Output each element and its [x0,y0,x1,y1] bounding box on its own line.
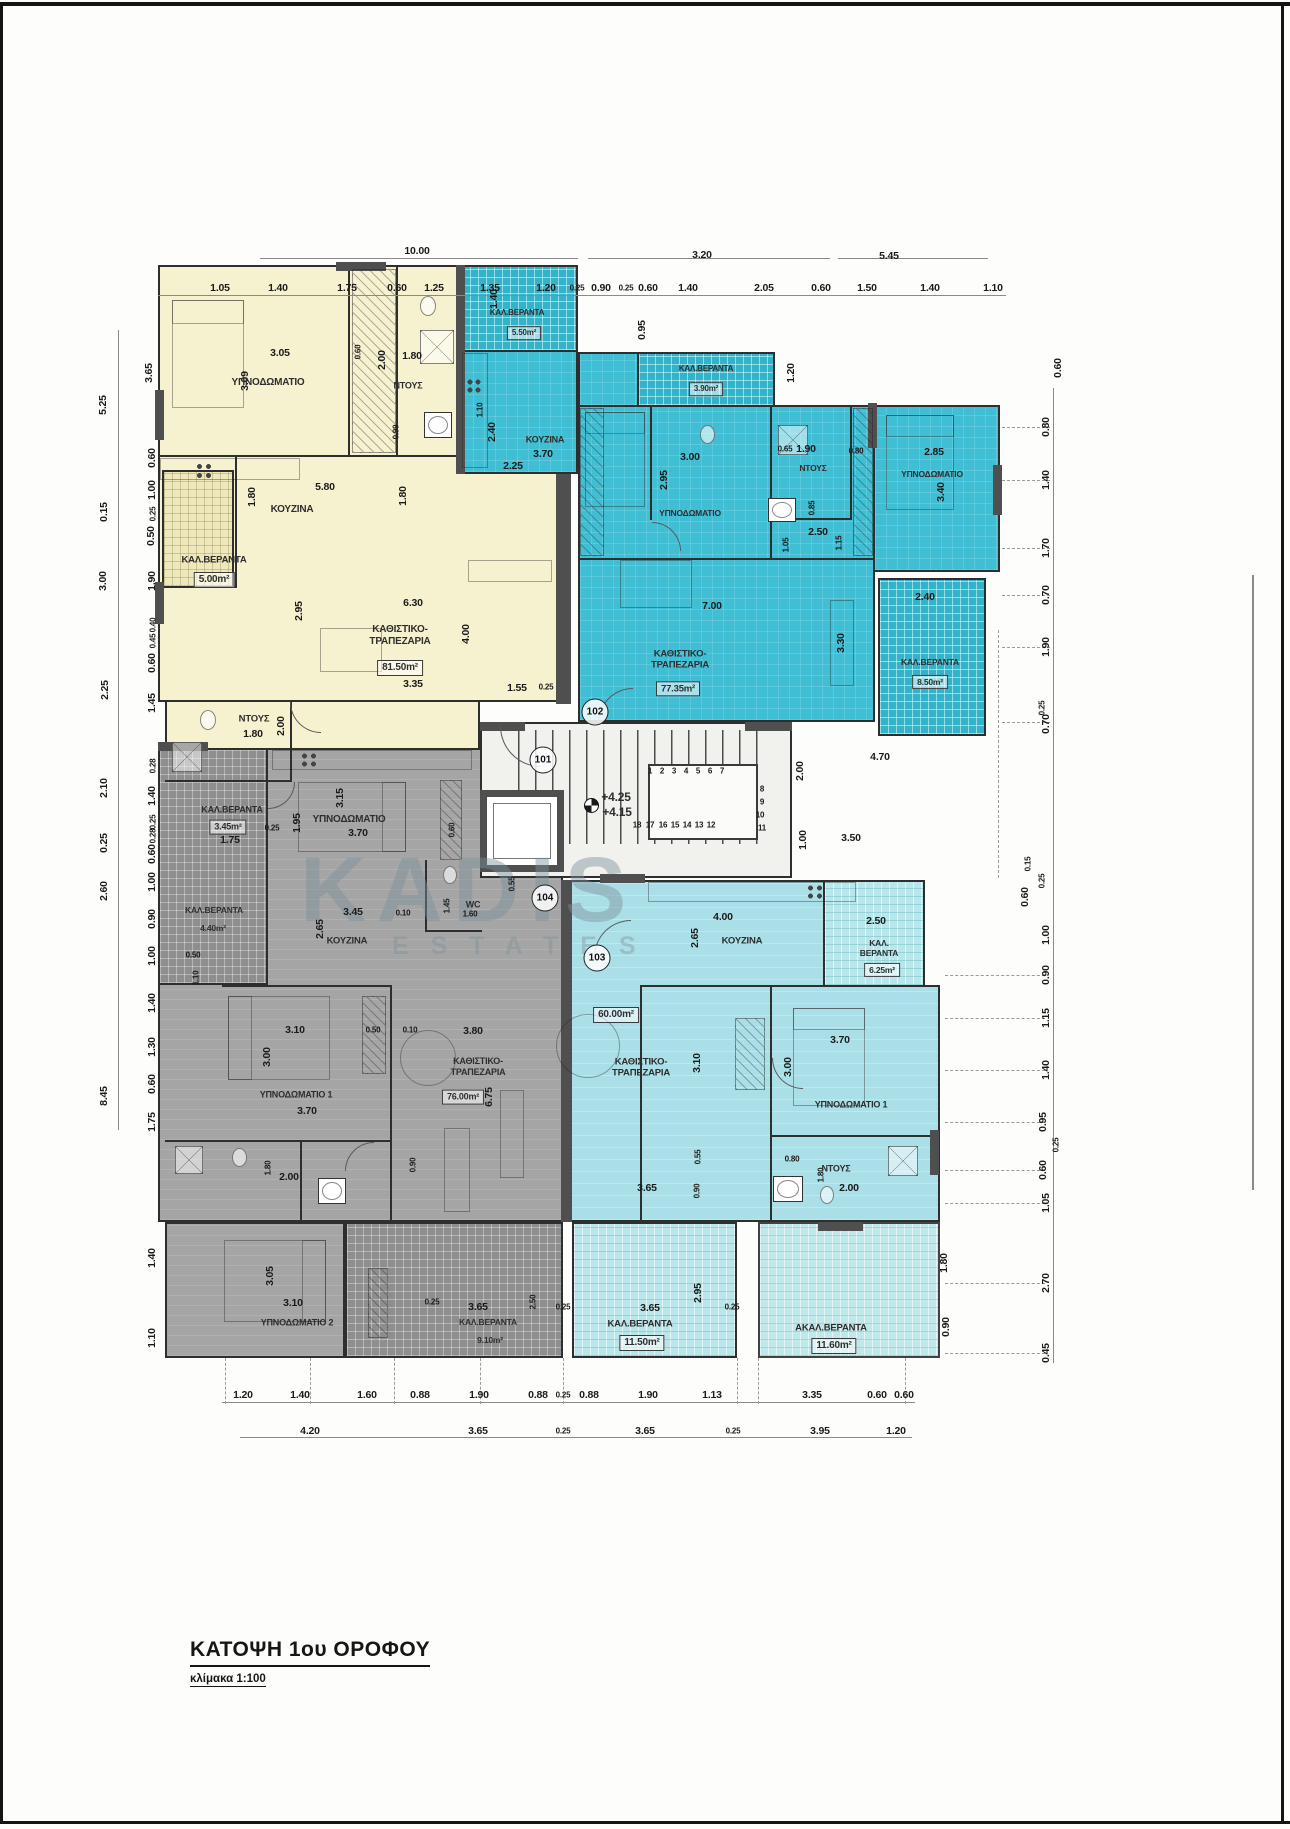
dim-label: 3.70 [348,827,368,839]
dim-label: 2.65 [314,919,326,939]
dim-label: 2.50 [529,1295,538,1310]
dim-label: 0.10 [403,1026,418,1035]
dim-label: 1.20 [536,282,556,294]
dim-label: 1.45 [443,899,452,914]
floor-plan-page: KADIS ESTATES 10.003.205.451.051.401.750… [0,0,1290,1829]
unit-103-badge: 103 [584,945,611,972]
dim-label: 0.50 [366,1026,381,1035]
dim-label: 3.70 [297,1105,317,1117]
dim-label: 0.25 [149,507,158,522]
dim-label: 2.40 [486,422,498,442]
dim-label: 0.45 [1040,1343,1052,1363]
room-label: ΥΠΝΟΔΩΜΑΤΙΟ 1 [815,1100,888,1111]
room-label: 4.40m² [200,923,226,933]
room-label: 3.90m² [689,382,723,396]
room-label: +4.15 [602,805,631,819]
dim-label: 3.05 [270,347,290,359]
dim-label: 0.60 [1019,887,1031,907]
dim-label: 0.80 [785,1155,800,1164]
dim-label: 6.75 [483,1087,495,1107]
room-label: 9.10m² [477,1335,503,1345]
dim-label: 0.85 [808,501,817,516]
dim-label: 1.70 [1040,538,1052,558]
dim-label: 0.70 [1040,714,1052,734]
dim-label: 1.80 [938,1253,950,1273]
dim-label: 10.00 [404,245,429,257]
dim-label: 0.60 [638,282,658,294]
room-label: 11.50m² [619,1335,664,1351]
dim-label: 3.65 [635,1425,655,1437]
dim-label: 0.88 [410,1389,430,1401]
dim-label: 2.00 [279,1171,299,1183]
dim-label: 3.95 [810,1425,830,1437]
dim-label: 1.90 [146,571,158,591]
room-label: ΑΚΑΛ.ΒΕΡΑΝΤΑ [795,1322,867,1333]
dim-label: 3.30 [835,633,847,653]
drawing-scale: κλίμακα 1:100 [190,1673,266,1687]
dim-label: 4.00 [713,911,733,923]
dim-label: 0.25 [556,1391,571,1400]
dim-label: 0.60 [811,282,831,294]
dim-label: 2.50 [866,915,886,927]
dim-label: 3.15 [334,788,346,808]
dim-label: 0.55 [508,877,517,892]
title-block: ΚΑΤΟΨΗ 1ου ΟΡΟΦΟΥ κλίμακα 1:100 [190,1638,430,1687]
dim-label: 0.95 [636,320,648,340]
dim-label: 1.00 [146,946,158,966]
dim-label: 1.00 [146,872,158,892]
dim-label: 3.50 [841,832,861,844]
dim-label: 5.25 [97,395,109,415]
dim-label: 1.15 [835,536,844,551]
dim-label: 0.60 [1037,1160,1049,1180]
dim-label: 0.15 [1024,857,1033,872]
dim-label: 1.00 [797,830,809,850]
dim-label: 0.90 [940,1317,952,1337]
dim-label: 2.00 [839,1182,859,1194]
room-label: 60.00m² [593,1007,639,1023]
room-label: 11.60m² [811,1338,856,1354]
room-label: ΚΑΘΙΣΤΙΚΟ- ΤΡΑΠΕΖΑΡΙΑ [369,624,430,648]
dim-label: 0.60 [146,844,158,864]
room-label: ΥΠΝΟΔΩΜΑΤΙΟ [231,377,304,389]
dim-label: 1.55 [507,682,527,694]
room-label: ΥΠΝΟΔΩΜΑΤΙΟ 1 [260,1090,333,1101]
dim-label: 2.95 [692,1283,704,1303]
dim-label: 0.60 [354,345,363,360]
dim-label: 1.80 [264,1161,273,1176]
room-label: WC [466,900,481,911]
dim-label: 2.00 [376,350,388,370]
dim-label: 3.00 [680,451,700,463]
unit-102-badge: 102 [582,699,609,726]
dim-label: 0.45 [149,634,158,649]
dim-label: 18 [633,821,642,830]
dim-label: 3.35 [802,1389,822,1401]
dim-label: 3.10 [283,1297,303,1309]
dim-label: 0.90 [409,1158,418,1173]
dim-label: 15 [671,821,680,830]
dim-label: 2.95 [293,601,305,621]
room-label: ΚΑΛ.ΒΕΡΑΝΤΑ [185,905,243,915]
dim-label: 2.25 [99,680,111,700]
room-label: ΥΠΝΟΔΩΜΑΤΙΟ [312,814,385,826]
room-label: 6.25m² [864,963,900,977]
dim-label: 2.65 [689,928,701,948]
dim-label: 5 [696,767,700,776]
dim-label: 0.60 [867,1389,887,1401]
dim-label: 6.30 [403,597,423,609]
dim-label: 1.60 [357,1389,377,1401]
dim-label: 0.25 [539,683,554,692]
dim-label: 1.40 [290,1389,310,1401]
dim-label: 0.28 [149,759,158,774]
dim-label: 0.25 [265,824,280,833]
dim-label: 4.20 [300,1425,320,1437]
dim-label: 0.90 [146,909,158,929]
dim-label: 0.25 [1052,1138,1061,1153]
dim-label: 2.25 [503,460,523,472]
room-label: ΝΤΟΥΣ [239,713,270,724]
dim-label: 1.25 [424,282,444,294]
dim-label: 2 [660,767,664,776]
room-label: ΚΑΘΙΣΤΙΚΟ- ΤΡΑΠΕΖΑΡΙΑ [651,649,709,672]
dim-label: 0.60 [448,823,457,838]
dim-label: 14 [683,821,692,830]
room-label: ΚΑΛ.ΒΕΡΑΝΤΑ [901,657,959,667]
dim-label: 4 [684,767,688,776]
dim-label: 0.88 [579,1389,599,1401]
dim-label: 12 [707,821,716,830]
dim-label: 11 [758,824,766,833]
room-label: ΝΤΟΥΣ [822,1164,851,1175]
dim-label: 0.60 [146,653,158,673]
room-label: +4.25 [601,790,630,804]
dim-label: 0.25 [1038,874,1047,889]
dim-label: 17 [646,821,655,830]
dim-label: 0.80 [1040,417,1052,437]
dim-label: 1.40 [678,282,698,294]
dim-label: 1.75 [146,1112,158,1132]
dim-label: 3.65 [640,1302,660,1314]
dim-label: 1.00 [1040,925,1052,945]
dim-label: 8.45 [98,1086,110,1106]
room-label: ΥΠΝΟΔΩΜΑΤΙΟ [659,508,721,518]
dim-label: 2.60 [98,881,110,901]
dim-label: 0.25 [570,284,585,293]
dim-label: 0.90 [591,282,611,294]
dim-label: 1.75 [337,282,357,294]
dim-label: 0.10 [396,909,411,918]
dim-label: 2.70 [1040,1273,1052,1293]
dim-label: 3.10 [285,1024,305,1036]
dim-label: 0.90 [693,1184,702,1199]
dim-label: 1.45 [146,693,158,713]
dim-label: 5.45 [879,250,899,262]
room-label: 3.45m² [209,820,246,835]
dim-label: 3.10 [691,1053,703,1073]
dim-label: 0.25 [619,284,634,293]
dim-label: 2.85 [924,446,944,458]
dim-label: 1.05 [782,538,791,553]
drawing-title: ΚΑΤΟΨΗ 1ου ΟΡΟΦΟΥ [190,1638,430,1667]
dim-label: 2.10 [98,778,110,798]
dim-label: 4.00 [460,624,472,644]
room-label: ΚΑΛ.ΒΕΡΑΝΤΑ [201,805,262,816]
dim-label: 1.90 [796,443,816,455]
dim-label: 0.50 [145,526,157,546]
unit-101-badge: 101 [530,747,557,774]
unit-104-badge: 104 [532,885,559,912]
dim-label: 6 [708,767,712,776]
dim-label: 16 [659,821,668,830]
dim-label: 3.45 [343,906,363,918]
dim-label: 0.25 [98,833,110,853]
room-label: ΚΟΥΖΙΝΑ [526,435,564,446]
dim-label: 1.10 [146,1328,158,1348]
dim-label: 1.40 [488,289,500,309]
dim-label: 1.20 [233,1389,253,1401]
annotation-layer: 10.003.205.451.051.401.750.601.251.351.2… [0,0,1290,1829]
dim-label: 3.35 [403,678,423,690]
room-label: ΚΑΘΙΣΤΙΚΟ- ΤΡΑΠΕΖΑΡΙΑ [612,1057,670,1080]
dim-label: 1.10 [192,971,201,986]
dim-label: 1.75 [220,834,240,846]
dim-label: 0.25 [425,1298,440,1307]
dim-label: 1.95 [291,813,303,833]
dim-label: 1.40 [146,993,158,1013]
room-label: ΥΠΝΟΔΩΜΑΤΙΟ [901,469,963,479]
dim-label: 0.60 [387,282,407,294]
dim-label: 0.60 [1052,358,1064,378]
dim-label: 3.65 [468,1301,488,1313]
dim-label: 2.40 [915,591,935,603]
dim-label: 1.80 [246,487,258,507]
dim-label: 1.13 [702,1389,722,1401]
dim-label: 0.60 [146,1074,158,1094]
dim-label: 1 [648,767,652,776]
dim-label: 3.65 [468,1425,488,1437]
dim-label: 0.65 [778,445,793,454]
dim-label: 0.50 [186,951,201,960]
dim-label: 5.80 [315,481,335,493]
dim-label: 0.28 [149,829,158,844]
dim-label: 0.25 [556,1427,571,1436]
dim-label: 7 [720,767,724,776]
dim-label: 1.20 [785,363,797,383]
dim-label: 0.25 [725,1303,740,1312]
dim-label: 3.80 [463,1025,483,1037]
dim-label: 0.88 [528,1389,548,1401]
dim-label: 0.70 [1040,585,1052,605]
room-label: ΝΤΟΥΣ [394,381,423,392]
dim-label: 1.90 [1040,637,1052,657]
dim-label: 0.80 [849,447,864,456]
dim-label: 4.70 [870,751,890,763]
dim-label: 1.60 [463,910,478,919]
dim-label: 0.25 [556,1303,571,1312]
dim-label: 2.05 [754,282,774,294]
dim-label: 0.99 [392,425,401,440]
dim-label: 1.40 [920,282,940,294]
room-label: ΚΟΥΖΙΝΑ [722,935,763,946]
room-label: ΥΠΝΟΔΩΜΑΤΙΟ 2 [261,1318,334,1329]
dim-label: 1.10 [476,403,485,418]
dim-label: 0.15 [98,502,110,522]
dim-label: 3.05 [264,1266,276,1286]
dim-label: 10 [756,811,765,820]
dim-label: 3.00 [782,1057,794,1077]
dim-label: 7.00 [702,600,722,612]
dim-label: 1.05 [210,282,230,294]
room-label: ΚΑΛ.ΒΕΡΑΝΤΑ [607,1318,672,1329]
dim-label: 0.25 [726,1427,741,1436]
dim-label: 1.20 [886,1425,906,1437]
dim-label: 1.00 [146,480,158,500]
dim-label: 2.95 [658,470,670,490]
room-label: 5.00m² [194,572,235,588]
dim-label: 1.05 [1040,1193,1052,1213]
dim-label: 3.00 [97,571,109,591]
dim-label: 1.40 [268,282,288,294]
room-label: 77.35m² [656,681,700,696]
room-label: ΚΑΘΙΣΤΙΚΟ- ΤΡΑΠΕΖΑΡΙΑ [451,1056,506,1078]
dim-label: 2.00 [794,761,806,781]
dim-label: 1.40 [146,1248,158,1268]
room-label: 76.00m² [442,1090,484,1105]
dim-label: 1.80 [243,728,263,740]
dim-label: 3.65 [143,363,155,383]
dim-label: 1.40 [1040,1060,1052,1080]
dim-label: 1.80 [397,486,409,506]
dim-label: 0.95 [1037,1112,1049,1132]
room-label: ΚΑΛ.ΒΕΡΑΝΤΑ [181,554,246,565]
room-label: ΚΟΥΖΙΝΑ [271,504,314,516]
room-label: ΚΟΥΖΙΝΑ [327,935,368,946]
dim-label: 1.40 [146,786,158,806]
room-label: ΚΑΛ.ΒΕΡΑΝΤΑ [490,308,544,318]
dim-label: 8 [760,785,764,794]
dim-label: 3.70 [533,448,553,460]
dim-label: 1.30 [146,1037,158,1057]
room-label: ΚΑΛ.ΒΕΡΑΝΤΑ [459,1317,517,1327]
dim-label: 0.90 [1040,965,1052,985]
dim-label: 2.50 [808,526,828,538]
dim-label: 3 [672,767,676,776]
room-label: 5.50m² [507,326,541,340]
dim-label: 3.20 [692,249,712,261]
dim-label: 3.00 [261,1047,273,1067]
room-label: ΚΑΛ. ΒΕΡΑΝΤΑ [860,938,898,958]
dim-label: 0.40 [149,618,158,633]
dim-label: 1.90 [469,1389,489,1401]
dim-label: 3.40 [935,482,947,502]
dim-label: 0.55 [694,1150,703,1165]
room-label: 8.50m² [912,675,948,689]
dim-label: 1.80 [402,350,422,362]
dim-label: 9 [760,798,764,807]
dim-label: 13 [695,821,704,830]
dim-label: 3.65 [637,1182,657,1194]
dim-label: 0.60 [894,1389,914,1401]
room-label: 81.50m² [377,660,423,676]
dim-label: 0.60 [146,448,158,468]
dim-label: 1.90 [638,1389,658,1401]
dim-label: 2.00 [275,716,287,736]
dim-label: 1.15 [1040,1008,1052,1028]
room-label: ΚΑΛ.ΒΕΡΑΝΤΑ [679,364,733,374]
room-label: ΝΤΟΥΣ [799,463,826,473]
dim-label: 1.10 [983,282,1003,294]
dim-label: 3.70 [830,1034,850,1046]
dim-label: 1.50 [857,282,877,294]
dim-label: 1.40 [1040,470,1052,490]
dim-label: 0.25 [149,815,158,830]
